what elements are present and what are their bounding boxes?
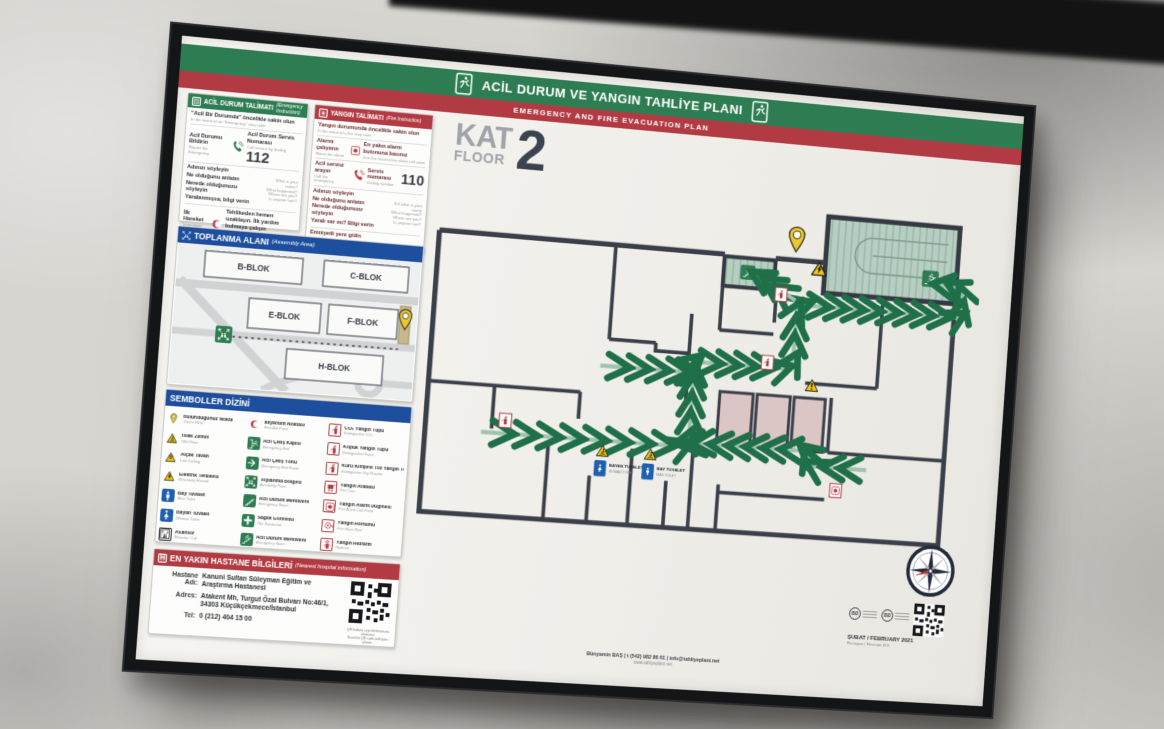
- hydrant-icon: [320, 538, 334, 552]
- emergency-instruction-panel: ACİL DURUM TALİMATI (Emergency Instructi…: [178, 92, 309, 231]
- q4-en: Is anyone hurt?: [261, 197, 297, 205]
- call-emergency-en: Call the emergency: [314, 174, 349, 187]
- hospital-qr-code: QR kodunu cep telefonunuza okutunuz Scan…: [346, 581, 393, 646]
- assembly-point-icon: [244, 475, 258, 489]
- certification-block: ISO ISO ŞUBAT / FEBRUARY 2021 Revizyon /…: [847, 607, 984, 653]
- sanitarian-icon: [241, 513, 255, 527]
- fire-alarm-button-icon: [323, 500, 337, 514]
- qr-code-icon: [348, 581, 391, 625]
- hospital-panel-subtitle: (Nearest hospital information): [295, 563, 366, 573]
- assembly-area-panel: TOPLANMA ALANI (Assembly Area): [166, 225, 424, 402]
- fq4-en: Is anyone hurt?: [383, 220, 421, 228]
- wet-floor-icon: [166, 431, 180, 445]
- floor-number: 2: [514, 127, 548, 176]
- man-toilet-sign: BAY TUVALET MAN TOILET: [641, 463, 686, 482]
- svg-text:MAN TOILET: MAN TOILET: [656, 473, 677, 478]
- document-icon: [192, 96, 202, 106]
- hospital-h-icon: H: [158, 553, 168, 563]
- floor-plan: BAYAN TUVALET WOMAN TOILET BAY TUVALET M…: [408, 174, 985, 557]
- emergency-panel-subtitle: (Emergency Instruction): [276, 102, 304, 116]
- wet-floor-icon: [644, 449, 657, 460]
- credit-line: Bünyamin BAŞ | t (542) 982 86 61 | info@…: [531, 648, 773, 672]
- svg-text:WOMAN TOILET: WOMAN TOILET: [609, 470, 635, 476]
- stairwell-large: [823, 217, 960, 304]
- fire-cart-icon: [324, 481, 338, 495]
- you-are-here-pin: [788, 227, 805, 253]
- wet-floor-icon: [596, 445, 609, 456]
- flame-icon: [319, 108, 328, 118]
- report-en: Report the Emergency: [188, 145, 228, 158]
- assembly-panel-subtitle: (Assembly Area): [272, 239, 315, 248]
- extinguisher-co2-icon: [328, 423, 341, 437]
- compass-rose: [903, 542, 959, 600]
- man-toilet-icon: [161, 489, 175, 503]
- floor-indicator: KAT FLOOR 2: [453, 121, 548, 176]
- alarm-button-icon: [349, 145, 360, 157]
- hospital-tel: 0 (212) 404 15 00: [199, 613, 252, 625]
- qr-code-icon: [912, 603, 945, 637]
- low-ceiling-icon: [164, 450, 178, 464]
- hospital-tel-label: Tel:: [155, 610, 195, 621]
- symbol-row: Acil Durum MerdiveniEmergency Stairs: [239, 529, 319, 553]
- iso-badge: ISO: [849, 607, 878, 621]
- photo-of-evacuation-plan: ACİL DURUM VE YANGIN TAHLİYE PLANI EMERG…: [0, 0, 1164, 729]
- extinguisher-foam-icon: [327, 442, 341, 456]
- emergency-exit-door-icon: [247, 437, 261, 451]
- phone-icon: [230, 140, 244, 154]
- stairwell-small: [723, 256, 776, 290]
- assembly-area-map: B-BLOK C-BLOK E-BLOK F-BLOK H-BLOK: [167, 242, 422, 400]
- emergency-stairs-icon: [242, 494, 256, 508]
- woman-toilet-sign: BAYAN TUVALET WOMAN TOILET: [593, 460, 644, 479]
- extinguisher-icons: [495, 265, 855, 498]
- assembly-point-map-icon: [215, 325, 233, 343]
- phone-icon: [351, 169, 364, 183]
- woman-toilet-icon: [160, 508, 174, 522]
- symbols-panel: SEMBOLLER DİZİNİ Bulunduğunuz NoktaYou'r…: [154, 389, 412, 558]
- fire-instruction-panel: YANGIN TALİMATI (Fire Instruction) Yangı…: [304, 104, 433, 254]
- evacuation-plan-board: ACİL DURUM VE YANGIN TAHLİYE PLANI EMERG…: [136, 36, 1025, 707]
- hospital-name-label: Hastane Adı:: [158, 570, 199, 589]
- exit-run-icon: [454, 72, 473, 96]
- symbols-column-3: CO₂ Yangın TüpüExtinguisher CO₂ Köpük Ya…: [320, 420, 407, 558]
- electricity-hazard-icon: [163, 470, 177, 484]
- hospital-info-panel: H EN YAKIN HASTANE BİLGİLERİ (Nearest ho…: [147, 548, 401, 648]
- fire-panel-subtitle: (Fire Instruction): [386, 115, 421, 124]
- iso-badge: ISO: [881, 609, 910, 623]
- fire-number-110: 110: [400, 172, 424, 189]
- fire-panel-title: YANGIN TALİMATI: [330, 110, 383, 122]
- hospital-address-label: Adres:: [156, 590, 197, 609]
- symbols-column-2: İlkyardım NoktasıFirst Aid Point Acil Çı…: [239, 415, 327, 554]
- stairs-run-icon: [240, 532, 254, 546]
- first-aid-crescent-icon: [248, 418, 262, 432]
- assembly-point-icon: [182, 229, 192, 241]
- exit-route-arrow-icon: [245, 456, 259, 470]
- sign-frame: ACİL DURUM VE YANGIN TAHLİYE PLANI EMERG…: [122, 21, 1037, 719]
- fire-hose-icon: [321, 519, 335, 533]
- qr-caption-en: Scan the QR code with your phone: [346, 636, 389, 646]
- elevator-icon: [158, 527, 172, 541]
- location-pin-icon: [167, 412, 181, 426]
- dial-en: Dialing number: [366, 181, 397, 188]
- symbol-row: AsansörElevator / Lift: [158, 524, 239, 548]
- symbol-row: Yangın HidrantıHydrant: [320, 535, 399, 559]
- exit-run-icon: [751, 100, 769, 124]
- extinguisher-powder-icon: [326, 462, 340, 476]
- symbols-column-1: Bulunduğunuz NoktaYou're Here Islak Zemi…: [158, 409, 247, 549]
